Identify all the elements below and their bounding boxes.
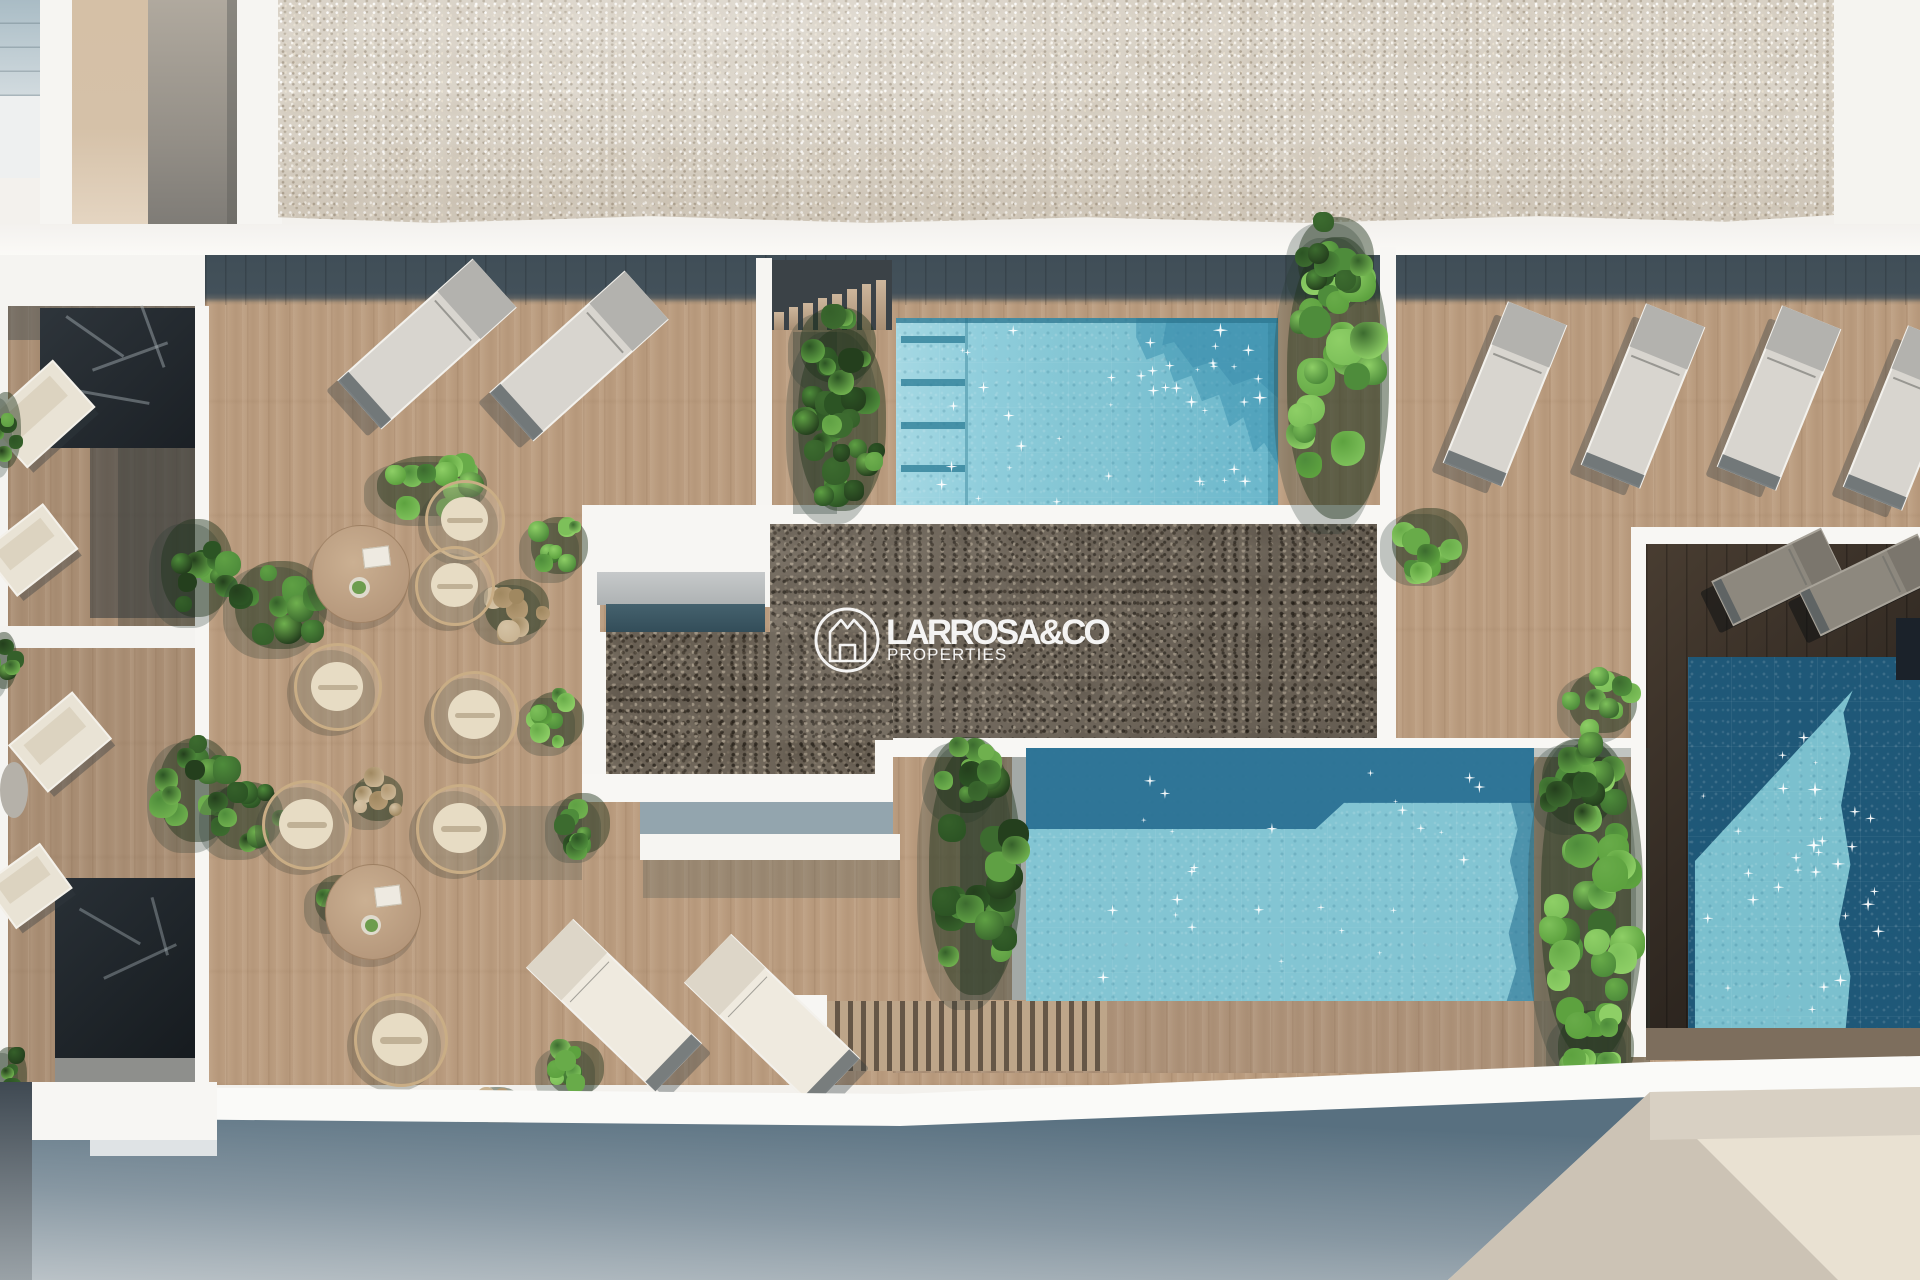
svg-text:PROPERTIES: PROPERTIES [887, 645, 1007, 664]
